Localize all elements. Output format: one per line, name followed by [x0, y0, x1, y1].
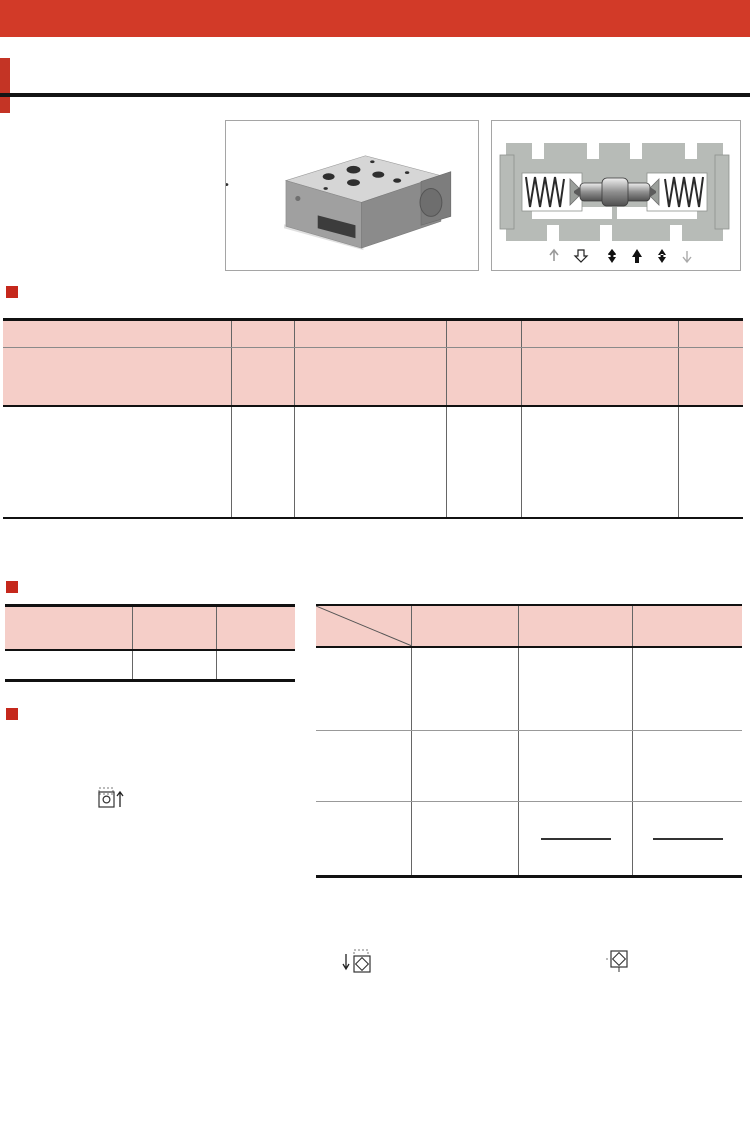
check-valve-icon — [92, 783, 126, 813]
hydraulic-symbol — [640, 664, 736, 714]
jis-corner-cell — [316, 606, 412, 646]
check-valve-icon — [340, 946, 378, 978]
body-design — [679, 407, 743, 517]
params-header-model — [5, 607, 133, 649]
valve-section-illustration — [492, 121, 737, 267]
code-series — [3, 321, 232, 347]
model-code-row — [3, 318, 743, 348]
hydraulic-symbol — [528, 741, 624, 791]
section-bullet-icon — [6, 708, 18, 720]
body-control — [522, 407, 680, 517]
body-pressure — [447, 407, 522, 517]
body-series — [3, 407, 232, 517]
hydraulic-symbol — [417, 664, 513, 714]
chart-min-pilot-pressure — [520, 898, 750, 1131]
params-table — [5, 604, 295, 682]
params-header-flow — [217, 607, 295, 649]
hydraulic-symbol — [528, 664, 624, 714]
params-section-heading — [6, 581, 22, 593]
code-design — [679, 321, 743, 347]
desc-series — [3, 348, 232, 405]
not-available-line — [653, 838, 723, 840]
jis-colhead-external — [519, 606, 633, 646]
section-bullet-icon — [6, 286, 18, 298]
desc-thread — [295, 348, 447, 405]
desc-size — [232, 348, 296, 405]
jis-rowlabel-mpa — [316, 648, 412, 730]
jis-symbol-cell — [412, 802, 519, 875]
brand-banner — [0, 0, 750, 37]
code-size — [232, 321, 296, 347]
jis-row-mpb — [316, 731, 742, 802]
body-thread — [295, 407, 447, 517]
jis-symbol-cell — [519, 731, 633, 801]
flow-arrows — [550, 249, 691, 263]
jis-header-row — [316, 606, 742, 648]
params-header-row — [5, 604, 295, 651]
chart-free-flow — [268, 898, 503, 1078]
plot-area — [578, 933, 723, 1083]
plot-area — [77, 939, 232, 1027]
jis-symbol-cell — [633, 731, 742, 801]
product-photo — [225, 120, 479, 271]
jis-row-mpa — [316, 648, 742, 731]
model-body-row — [3, 407, 743, 519]
jis-empty-cell — [519, 802, 633, 875]
spec-section-heading — [6, 708, 22, 720]
jis-colhead-ext-int — [633, 606, 742, 646]
jis-symbol-table — [316, 604, 742, 878]
params-pressure-value — [133, 651, 217, 679]
hydraulic-symbol — [417, 814, 513, 864]
hydraulic-symbol — [640, 741, 736, 791]
cross-section-diagram — [491, 120, 741, 271]
jis-rowlabel-mpw — [316, 802, 412, 875]
title-rule — [0, 93, 750, 97]
params-data-row — [5, 651, 295, 682]
jis-colhead-internal — [412, 606, 519, 646]
desc-design — [679, 348, 743, 405]
params-header-pressure — [133, 607, 217, 649]
model-desc-row — [3, 348, 743, 407]
section-bullet-icon — [6, 581, 18, 593]
chart-per-line-drop — [30, 898, 245, 1066]
not-available-line — [541, 838, 611, 840]
jis-symbol-cell — [412, 731, 519, 801]
desc-pressure — [447, 348, 522, 405]
chart-reverse-flow — [30, 742, 245, 894]
check-valve-icon — [606, 948, 632, 972]
code-pressure — [447, 321, 522, 347]
jis-row-mpw — [316, 802, 742, 875]
jis-symbol-cell — [519, 648, 633, 730]
model-code-table — [3, 318, 743, 519]
desc-control — [522, 348, 680, 405]
jis-symbol-cell — [633, 648, 742, 730]
model-section-heading — [6, 286, 22, 298]
code-thread — [295, 321, 447, 347]
jis-symbol-cell — [412, 648, 519, 730]
title-accent-bar — [0, 58, 10, 113]
code-control — [522, 321, 680, 347]
body-size — [232, 407, 296, 517]
jis-rowlabel-mpb — [316, 731, 412, 801]
jis-empty-cell — [633, 802, 742, 875]
params-model-value — [5, 651, 133, 679]
valve-photo-illustration — [226, 121, 475, 267]
params-flow-value — [217, 651, 295, 679]
diagonal-divider — [316, 606, 412, 646]
hydraulic-symbol — [417, 741, 513, 791]
datasheet-page — [0, 0, 750, 1131]
